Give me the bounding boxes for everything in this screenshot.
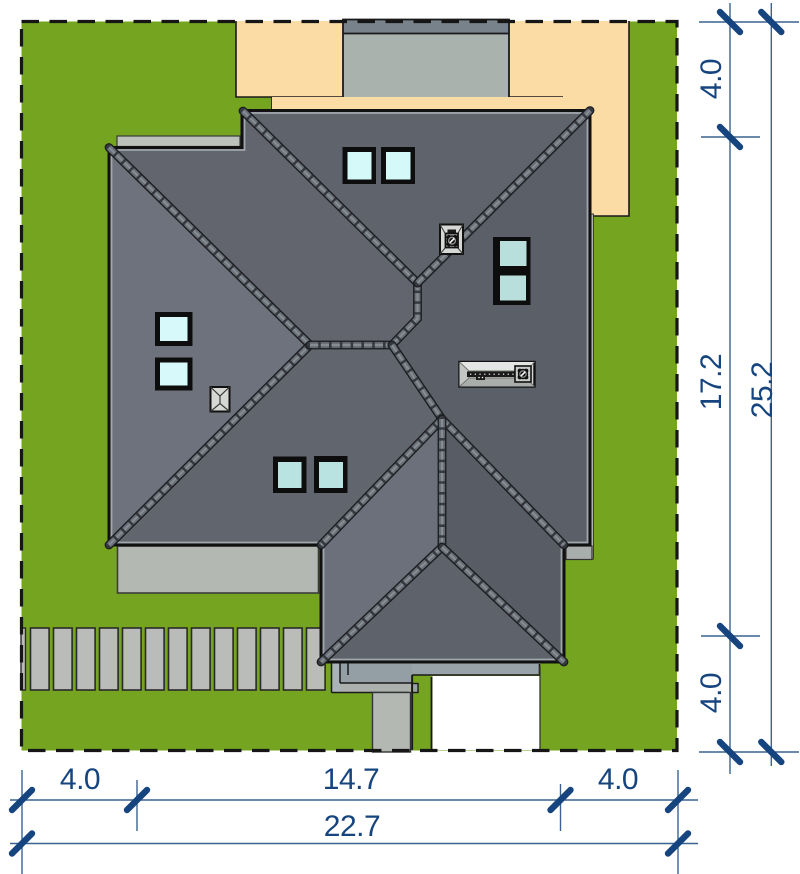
svg-text:17.2: 17.2	[695, 354, 728, 410]
svg-text:4.0: 4.0	[695, 59, 728, 99]
svg-text:4.0: 4.0	[598, 763, 638, 796]
svg-text:14.7: 14.7	[323, 763, 379, 796]
svg-text:4.0: 4.0	[695, 673, 728, 713]
svg-text:4.0: 4.0	[60, 763, 100, 796]
svg-text:22.7: 22.7	[324, 810, 380, 843]
svg-text:25.2: 25.2	[746, 362, 779, 418]
